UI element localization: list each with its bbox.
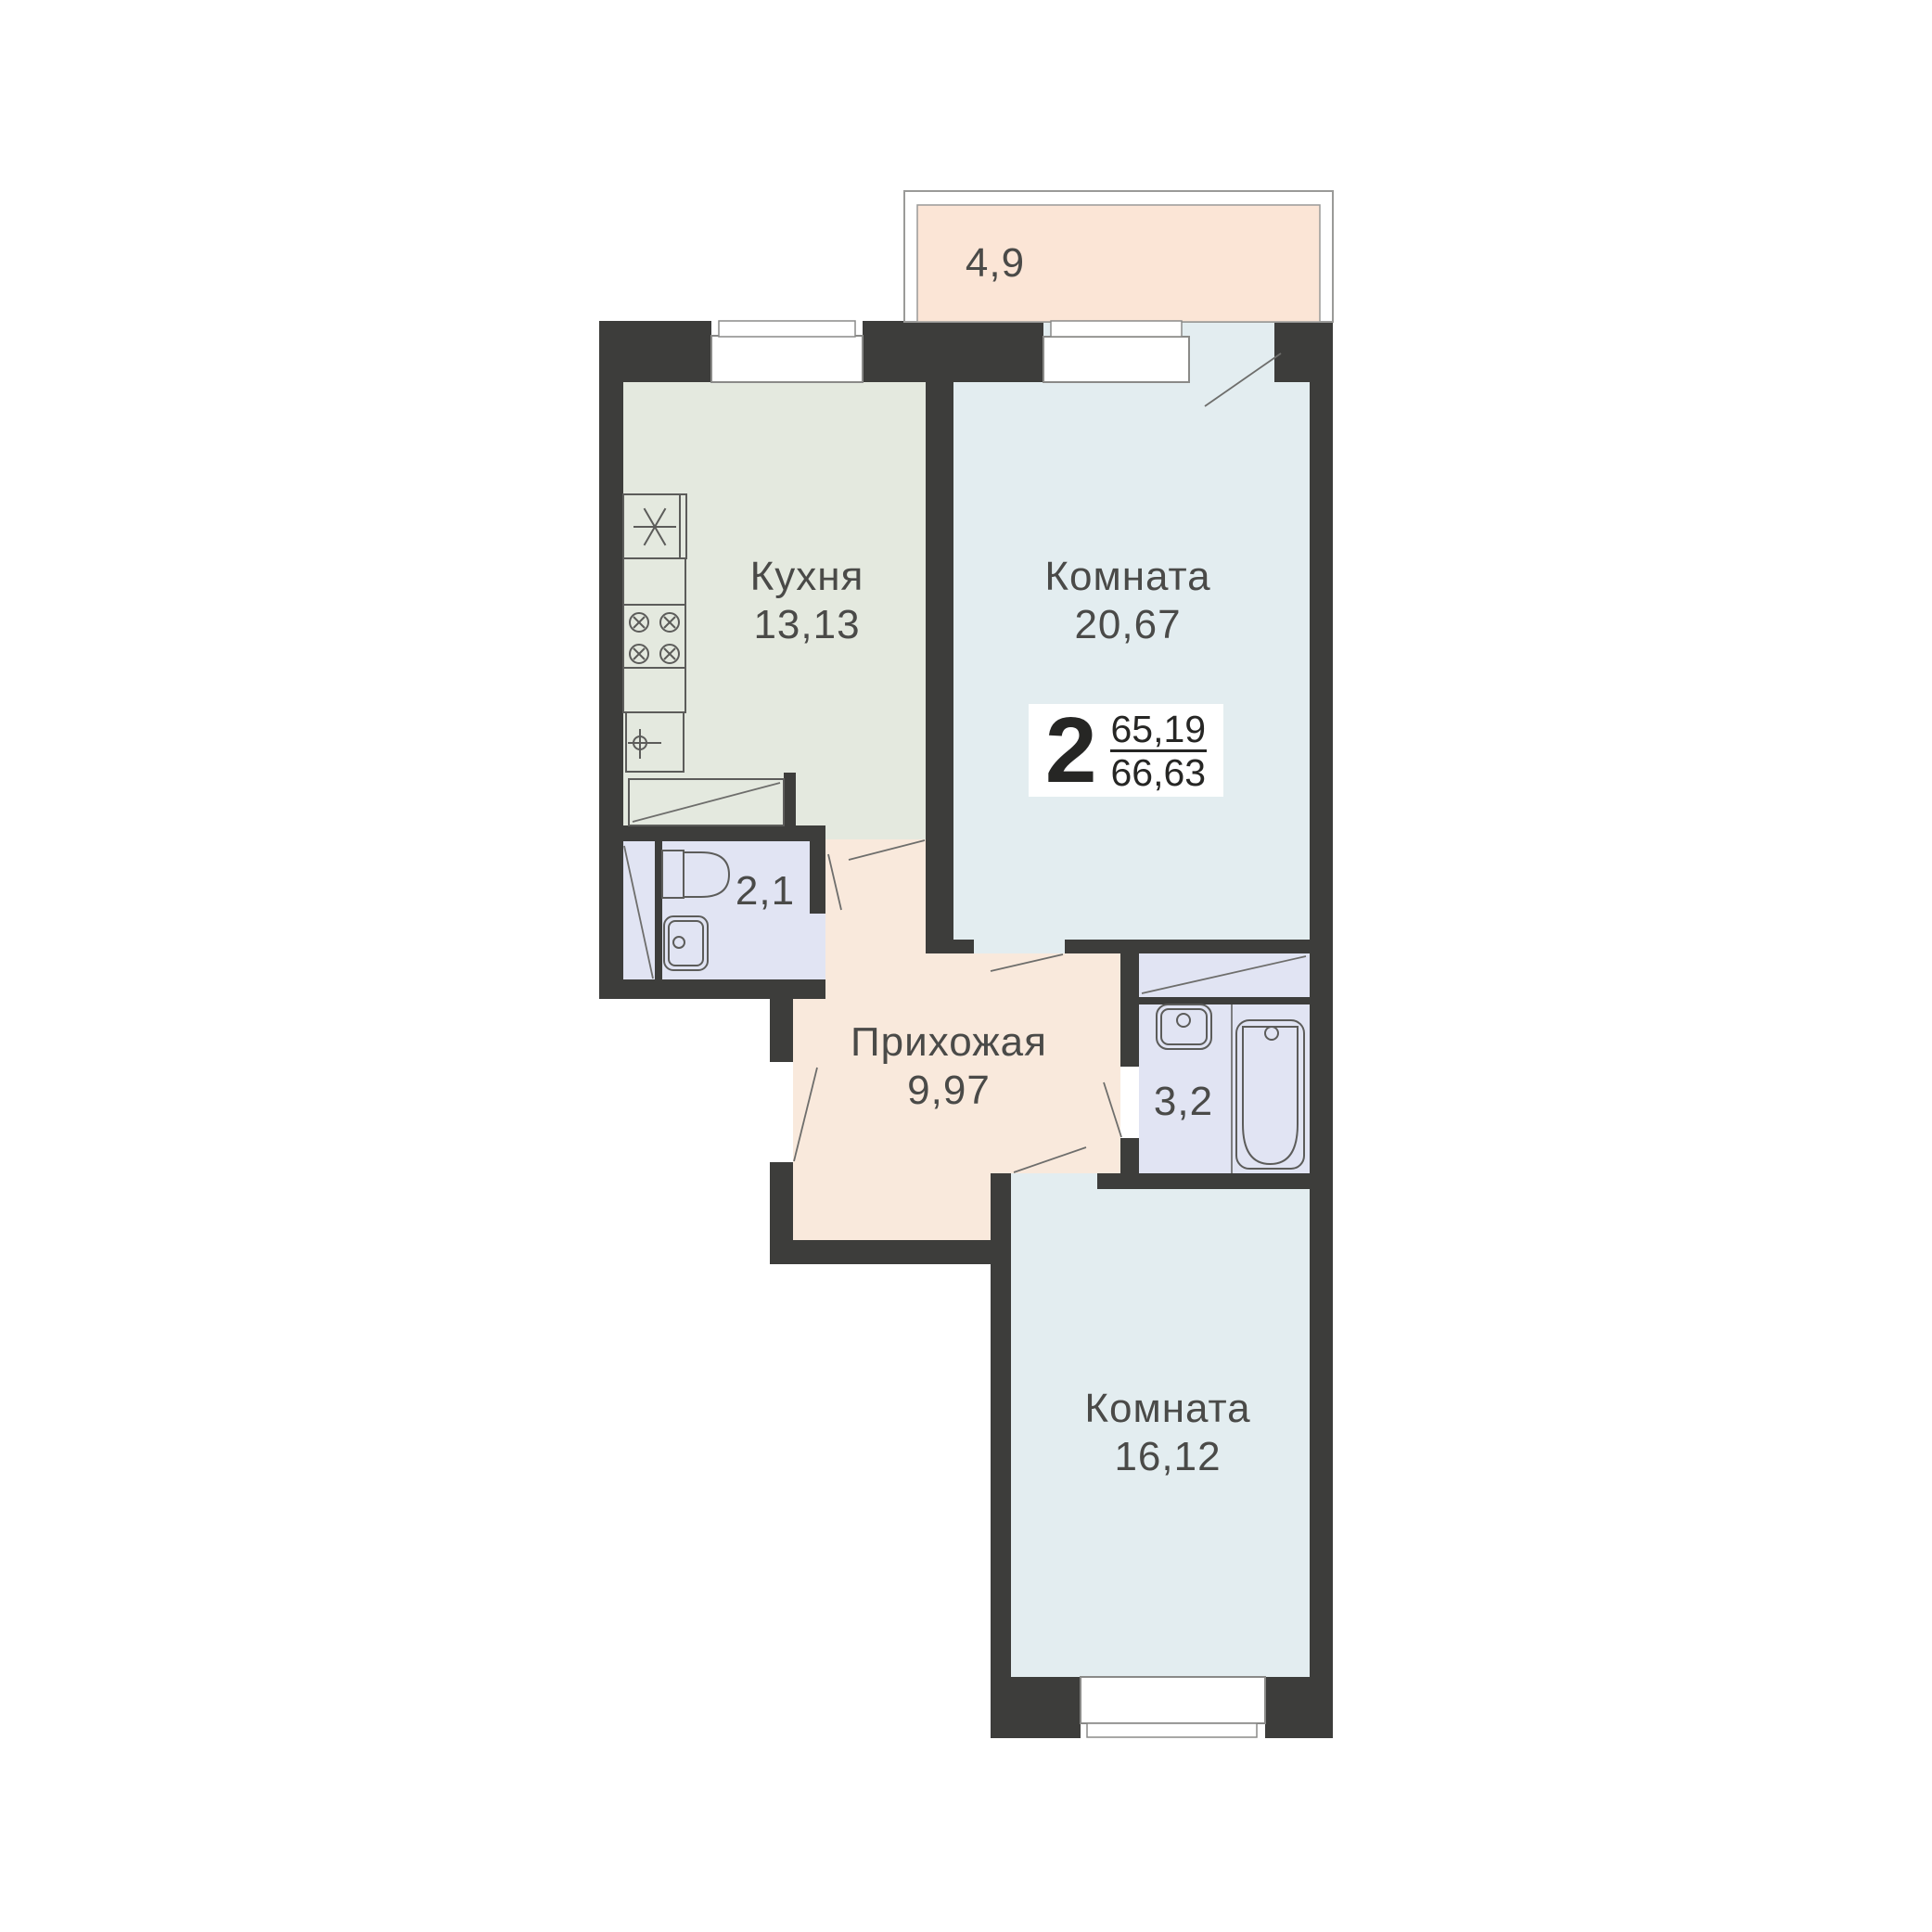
apartment-type-badge: 2 65,19 66,63 (1029, 704, 1223, 797)
living-room-name: Комната (1044, 553, 1210, 601)
balcony-label: 4,9 (966, 239, 1025, 288)
kitchen-door-swing (849, 840, 925, 860)
kitchen-window-sill (719, 321, 855, 337)
bedroom-area: 16,12 (1084, 1433, 1250, 1481)
kitchen-area: 13,13 (750, 601, 864, 649)
bath-sink-drain (1177, 1014, 1190, 1027)
bathroom-label: 3,2 (1154, 1078, 1213, 1126)
toilet-tank (662, 851, 684, 898)
kitchen-counter (623, 558, 685, 605)
area-fraction: 65,19 66,63 (1110, 709, 1208, 793)
living-door-swing (991, 954, 1063, 971)
bedroom-label: Комната 16,12 (1084, 1385, 1250, 1481)
bath-closet-diagonal (1142, 956, 1306, 993)
bedroom-name: Комната (1084, 1385, 1250, 1433)
kitchen-counter (623, 668, 685, 712)
wc-sink-icon (664, 916, 708, 970)
wc-sink-drain (673, 937, 685, 948)
wc-area: 2,1 (736, 868, 795, 914)
total-area-value: 66,63 (1111, 752, 1207, 793)
bedroom-window-sill (1087, 1723, 1257, 1737)
bathroom-door-swing (1104, 1082, 1121, 1137)
wc-duct-diagonal (624, 846, 653, 979)
kitchen-label: Кухня 13,13 (750, 553, 864, 649)
bathtub-inner (1243, 1027, 1298, 1164)
kitchen-window-recess (711, 336, 863, 382)
living-room-label: Комната 20,67 (1044, 553, 1210, 649)
wc-door-swing (828, 854, 841, 910)
bathroom-area: 3,2 (1154, 1079, 1213, 1124)
balcony-door-swing (1205, 353, 1281, 406)
hallway-area: 9,97 (851, 1067, 1047, 1115)
living-window-sill (1051, 321, 1182, 337)
kitchen-closet-diagonal (633, 783, 780, 822)
hallway-label: Прихожая 9,97 (851, 1018, 1047, 1115)
rooms-count: 2 (1045, 709, 1097, 792)
living-room-area: 20,67 (1044, 601, 1210, 649)
toilet-bowl-icon (684, 852, 729, 897)
bathtub-faucet (1265, 1027, 1278, 1040)
entrance-door-swing (794, 1068, 817, 1161)
bedroom-window-recess (1081, 1677, 1265, 1723)
wc-label: 2,1 (736, 867, 795, 915)
living-area-value: 65,19 (1110, 709, 1208, 752)
living-window-recess (1043, 337, 1189, 382)
hallway-name: Прихожая (851, 1018, 1047, 1067)
plan-linework (0, 0, 1932, 1932)
bedroom-door-swing (1014, 1147, 1086, 1172)
stove-icon (623, 605, 685, 668)
kitchen-name: Кухня (750, 553, 864, 601)
floor-plan-canvas: 4,9 Кухня 13,13 Комната 20,67 2 65,19 66… (0, 0, 1932, 1932)
balcony-area: 4,9 (966, 240, 1025, 286)
